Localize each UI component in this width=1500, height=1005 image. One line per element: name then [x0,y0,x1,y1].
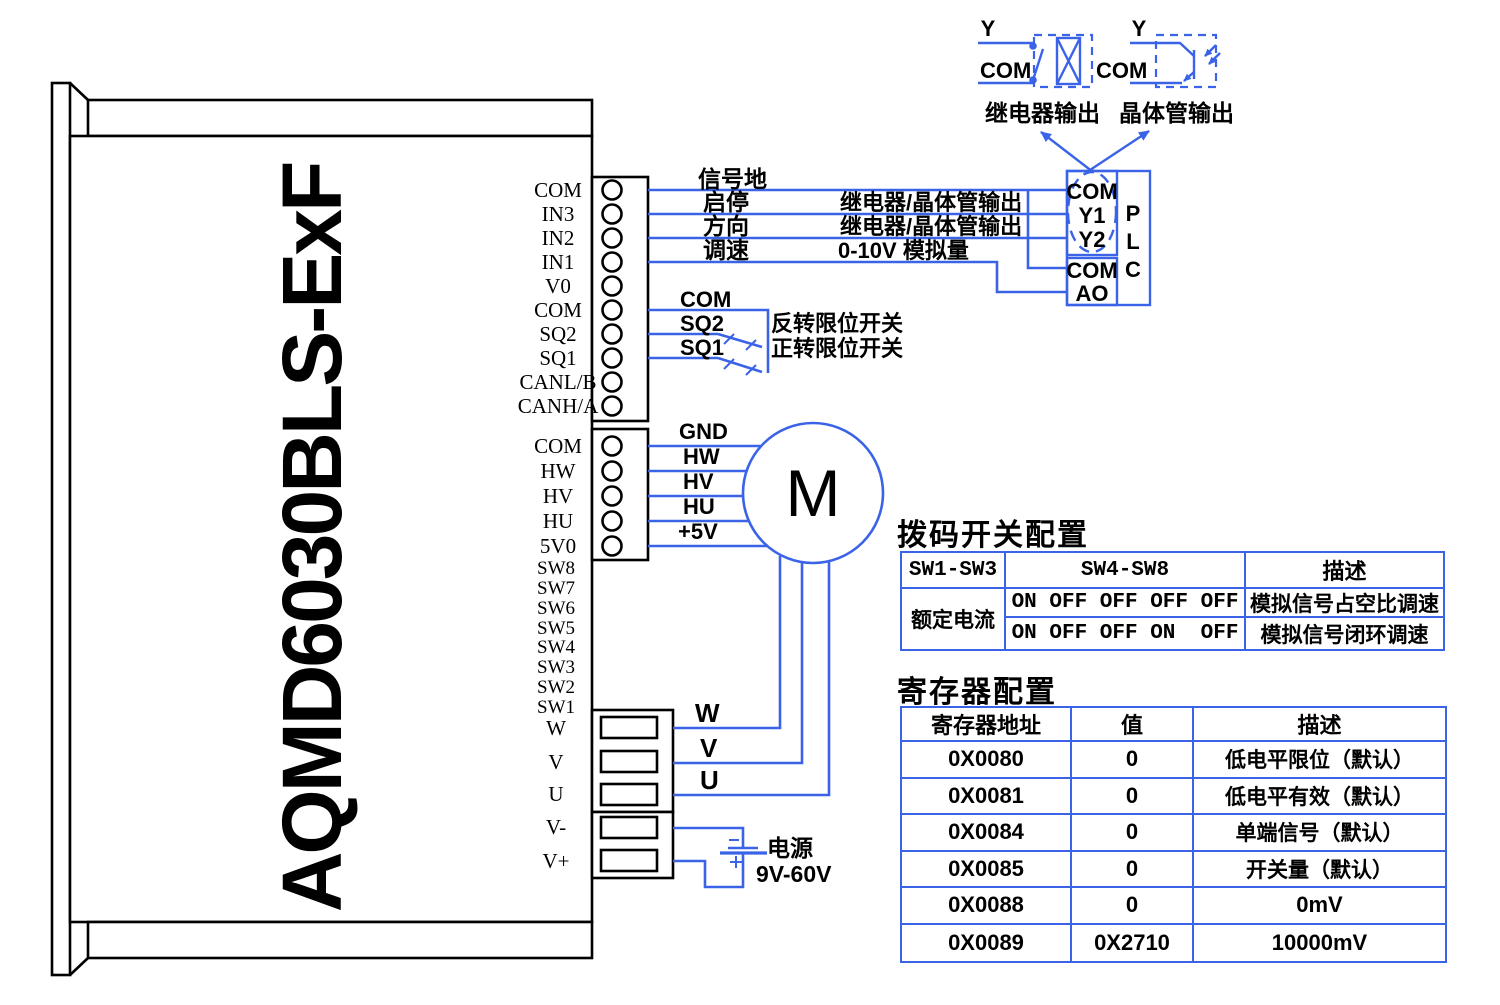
register-addr: 0X0089 [902,925,1072,962]
relay-transistor-note-1: 继电器/晶体管输出 [840,190,1022,215]
pin-label: COM [534,178,582,202]
dip-table-header-desc: 描述 [1246,553,1443,589]
p5v-label: +5V [678,519,718,544]
dip-label: SW2 [537,677,575,698]
dip-label: SW8 [537,558,575,579]
pin-label: SQ2 [539,322,576,346]
register-value: 0 [1072,742,1194,779]
wire-w [673,556,780,728]
dip-label: SW4 [537,637,576,658]
top-flange [88,100,592,136]
dip-label: SW7 [537,578,575,599]
relay-dashed-box [1034,35,1092,87]
register-desc: 低电平有效（默认） [1194,779,1445,816]
relay-com-label: COM [980,58,1031,83]
register-addr: 0X0085 [902,852,1072,889]
u-wire-label: U [700,765,719,795]
register-desc: 单端信号（默认） [1194,815,1445,852]
hv-label: HV [683,469,714,494]
arrow-to-transistor-caption [1087,131,1149,172]
relay-transistor-note-2: 继电器/晶体管输出 [840,214,1022,239]
pin-label: COM [534,298,582,322]
start-stop-label: 启停 [703,189,749,215]
hu-label: HU [683,494,715,519]
plc-y1-label: Y1 [1079,203,1106,228]
dip-label: SW5 [537,618,575,639]
relay-y-label: Y [981,16,996,41]
pin-label: V- [546,815,566,839]
pin-label: HV [543,484,573,508]
register-desc: 0mV [1194,888,1445,925]
gnd-label: GND [679,419,728,444]
transistor-caption: 晶体管输出 [1119,100,1234,126]
bottom-flange [88,922,592,958]
wire-vplus [673,853,743,887]
v-wire-label: V [700,733,718,763]
dip-table-desc-row1: 模拟信号占空比调速 [1246,589,1443,618]
terminal-blocks [592,177,673,878]
register-desc: 低电平限位（默认） [1194,742,1445,779]
w-wire-label: W [695,698,720,728]
register-addr: 0X0081 [902,779,1072,816]
register-value: 0 [1072,888,1194,925]
pin-label: HW [541,459,576,483]
plc-com2-label: COM [1066,258,1117,283]
register-value: 0 [1072,852,1194,889]
arrow-to-relay-caption [1041,132,1093,172]
pin-label: V0 [545,274,571,298]
transistor-collector-wire [1130,43,1194,56]
register-desc: 10000mV [1194,925,1445,962]
dip-table-desc-row2: 模拟信号闭环调速 [1246,618,1443,649]
pin-label: COM [534,434,582,458]
pin-label: IN3 [542,202,575,226]
wire-com-branch [1028,190,1067,268]
transistor-emitter-arrow [1184,72,1194,81]
pin-label: HU [543,509,573,533]
sq1-label: SQ1 [680,335,724,360]
dip-table-title: 拨码开关配置 [897,510,1089,554]
pin-label: 5V0 [540,534,576,558]
power-range-label: 9V-60V [756,861,832,887]
pin-label: IN2 [542,226,575,250]
register-addr: 0X0080 [902,742,1072,779]
direction-label: 方向 [703,213,749,239]
pin-label: SQ1 [539,346,576,370]
register-value: 0 [1072,779,1194,816]
dip-table-header-sw48: SW4-SW8 [1006,553,1246,589]
pin-label: CANL/B [519,370,596,394]
plc-letter-p: P [1126,201,1141,226]
plc-com1-label: COM [1066,179,1117,204]
mounting-plate [52,83,70,975]
dip-table-header-sw13: SW1-SW3 [902,553,1006,589]
dip-label: SW1 [537,697,575,718]
plc-terminal-labels: COM Y1 Y2 COM AO P L C [1066,179,1141,306]
wire-v [673,562,802,763]
pin-label: V [548,750,563,774]
limit-com-label: COM [680,287,731,312]
dip-table: SW1-SW3 SW4-SW8 描述 额定电流 ON OFF OFF OFF O… [900,551,1445,651]
wiring-diagram: AQMD6030BLS-ExF COM IN3 IN2 IN1 V0 COM S… [0,0,1500,1005]
hall-terminal-circles [603,437,622,556]
motor-label: M [786,456,841,530]
plc-letter-c: C [1125,257,1141,282]
register-header-value: 值 [1072,708,1194,742]
forward-limit-label: 正转限位开关 [771,336,903,361]
analog-note: 0-10V 模拟量 [838,238,969,263]
battery-plus-sign [730,856,742,868]
photo-arrow-1 [1205,45,1216,56]
register-value: 0X2710 [1072,925,1194,962]
transistor-y-label: Y [1132,16,1147,41]
pin-label: IN1 [542,250,575,274]
register-desc: 开关量（默认） [1194,852,1445,889]
register-table: 寄存器地址 值 描述 0X0080 0 低电平限位（默认） 0X0081 0 低… [900,706,1447,963]
transistor-com-label: COM [1096,58,1147,83]
register-table-title: 寄存器配置 [897,667,1057,711]
plc-y2-label: Y2 [1079,227,1106,252]
power-label: 电源 [767,835,813,861]
device-model-label: AQMD6030BLS-ExF [265,163,359,912]
pin-label: V+ [542,849,569,873]
wire-u [673,561,829,795]
register-addr: 0X0088 [902,888,1072,925]
relay-coil-x [1057,38,1080,84]
dip-table-sw-row2: ON OFF OFF ON OFF [1006,618,1246,649]
plc-ao-label: AO [1076,281,1109,306]
dip-table-sw-row1: ON OFF OFF OFF OFF [1006,589,1246,618]
dip-label: SW6 [537,598,575,619]
register-value: 0 [1072,815,1194,852]
register-header-addr: 寄存器地址 [902,708,1072,742]
wire-vminus [673,828,743,848]
dip-switch-labels: SW8 SW7 SW6 SW5 SW4 SW3 SW2 SW1 [537,558,576,718]
plc-letter-l: L [1126,229,1139,254]
pin-label: U [548,782,563,806]
relay-caption: 继电器输出 [985,100,1100,126]
photo-arrow-2 [1209,53,1220,64]
hw-label: HW [683,444,720,469]
sq2-label: SQ2 [680,311,724,336]
chamfer-bottom [70,958,88,975]
register-addr: 0X0084 [902,815,1072,852]
pin-label: CANH/A [518,394,599,418]
reverse-limit-label: 反转限位开关 [771,311,903,336]
dip-table-group-cell: 额定电流 [902,589,1006,649]
pin-label: W [546,716,566,740]
register-header-desc: 描述 [1194,708,1445,742]
chamfer-top [70,83,88,100]
speed-label: 调速 [703,237,749,263]
dip-label: SW3 [537,657,575,678]
